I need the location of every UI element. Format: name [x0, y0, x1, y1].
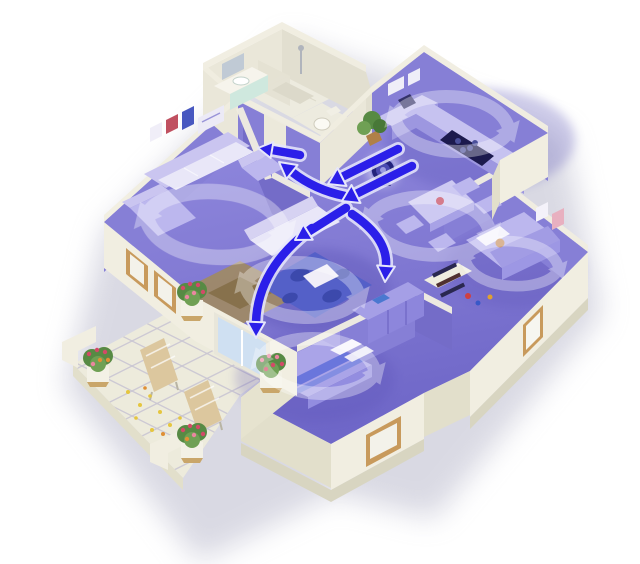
flower-planter — [177, 423, 207, 463]
sink-basin — [233, 77, 249, 85]
toilet — [314, 118, 330, 130]
arrow-hall-to-living — [272, 150, 300, 155]
shower-head-icon — [298, 45, 304, 51]
toy — [488, 295, 493, 300]
floorplan-svg — [0, 0, 640, 564]
toy — [465, 293, 471, 299]
toy — [476, 301, 481, 306]
flower-planter — [83, 347, 113, 387]
flower-planter — [177, 281, 207, 321]
floorplan-scene — [0, 0, 640, 564]
